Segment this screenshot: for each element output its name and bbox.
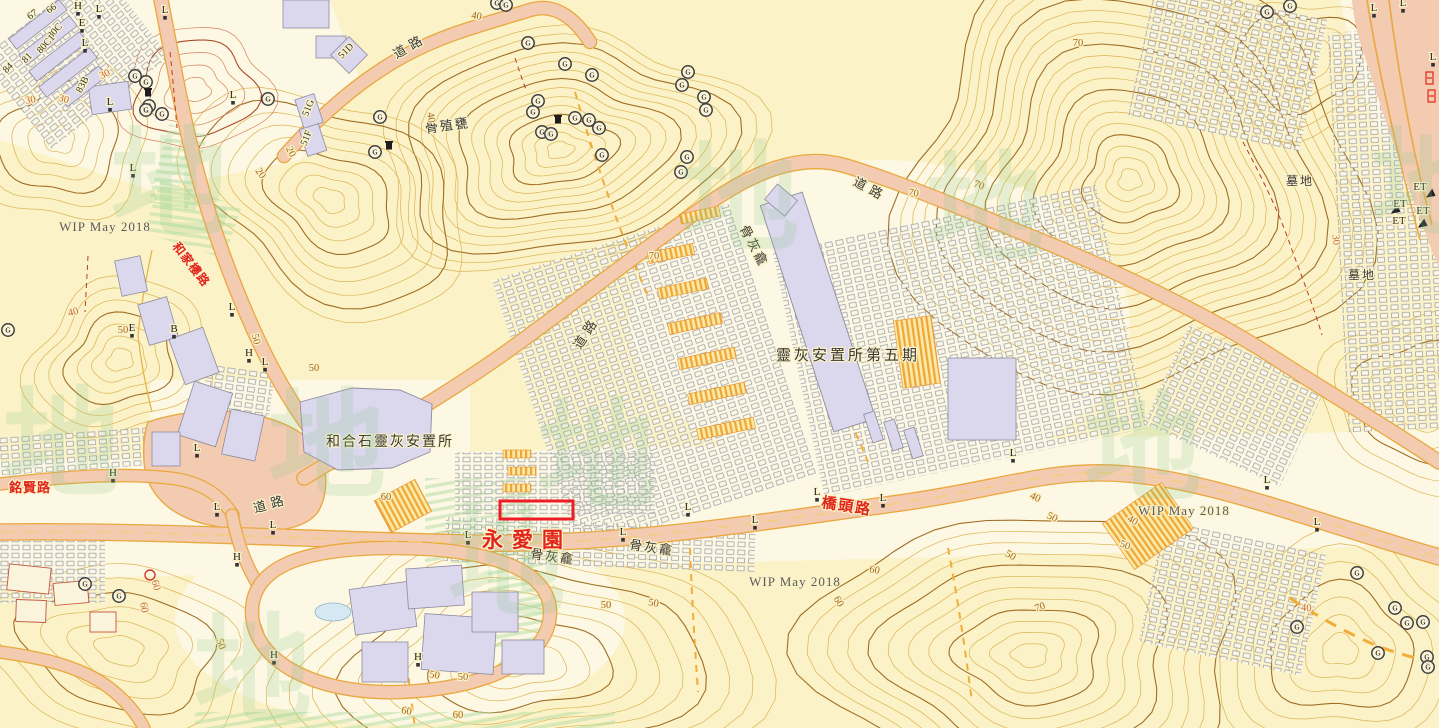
wip-label: WIP May 2018 xyxy=(749,574,841,589)
place-label: 靈灰安置所第五期 xyxy=(776,346,920,364)
grave-icon-glyph: G xyxy=(1392,605,1398,613)
utility-marker-dot xyxy=(263,368,267,372)
utility-marker-dot xyxy=(163,16,167,20)
contour-elevation-label: 60 xyxy=(868,564,880,577)
slope-hatch xyxy=(503,450,531,458)
utility-marker-dot xyxy=(215,513,219,517)
grave-icon-glyph: G xyxy=(530,109,536,117)
grave-icon-glyph: G xyxy=(1294,624,1300,632)
grave-icon: G xyxy=(593,122,605,134)
building-outlined xyxy=(7,564,51,594)
utility-marker-dot xyxy=(76,12,80,16)
grave-icon: G xyxy=(569,112,581,124)
grave-icon: G xyxy=(1417,616,1429,628)
grave-icon-glyph: G xyxy=(1375,650,1381,658)
topographic-map: GGGGGGGGGGGGGGGGGGGGGGGGGGGGGGGGGGGGGGGG… xyxy=(0,0,1439,728)
grave-icon: G xyxy=(113,590,125,602)
grave-icon-glyph: G xyxy=(548,131,554,139)
grave-icon-glyph: G xyxy=(535,98,541,106)
grave-icon-glyph: G xyxy=(377,114,383,122)
building xyxy=(362,642,408,682)
building xyxy=(283,0,329,28)
grave-icon: G xyxy=(676,79,688,91)
grave-icon-glyph: G xyxy=(599,152,605,160)
utility-marker-dot xyxy=(130,334,134,338)
grave-icon: G xyxy=(1351,567,1363,579)
grave-icon: G xyxy=(596,149,608,161)
grave-icon: G xyxy=(522,37,534,49)
grave-icon: G xyxy=(262,93,274,105)
grave-icon: G xyxy=(1422,661,1434,673)
utility-marker-dot xyxy=(230,313,234,317)
building-outlined xyxy=(16,599,47,622)
grave-icon: G xyxy=(500,0,512,11)
grave-icon: G xyxy=(1261,6,1273,18)
watermark-glyph: 地 xyxy=(1371,120,1439,251)
utility-marker-dot xyxy=(247,359,251,363)
building xyxy=(948,358,1016,440)
utility-marker-letter: H xyxy=(414,651,422,663)
watermark-glyph: 地 xyxy=(194,607,312,728)
grave-icon-glyph: G xyxy=(503,2,509,10)
utility-marker-letter: L xyxy=(229,301,236,313)
grave-icon: G xyxy=(527,106,539,118)
grave-icon-glyph: G xyxy=(562,61,568,69)
place-label: 墓地 xyxy=(1348,268,1376,282)
utility-marker-dot xyxy=(753,526,757,530)
utility-marker-letter: H xyxy=(74,0,82,12)
grave-icon-glyph: G xyxy=(1354,570,1360,578)
grave-icon: G xyxy=(2,324,14,336)
bin-lid xyxy=(385,141,393,143)
utility-marker-letter: H xyxy=(245,347,253,359)
utility-marker-dot xyxy=(80,29,84,33)
grave-icon-glyph: G xyxy=(685,69,691,77)
pond xyxy=(315,603,351,621)
utility-marker-dot xyxy=(1265,486,1269,490)
grave-icon-glyph: G xyxy=(525,40,531,48)
highlight-label-wing-oi-garden: 永愛園 xyxy=(481,528,572,552)
grave-icon: G xyxy=(156,108,168,120)
utility-marker-dot xyxy=(83,49,87,53)
utility-marker-letter: H xyxy=(233,551,241,563)
utility-marker-letter: L xyxy=(262,356,269,368)
contour-elevation-label: 50 xyxy=(458,672,469,683)
bin-icon xyxy=(554,115,562,124)
contour-elevation-label: 60 xyxy=(137,601,150,613)
watermark-glyph: 地 xyxy=(1084,385,1202,516)
bin-lid xyxy=(554,115,562,117)
utility-marker-letter: L xyxy=(620,526,627,538)
contour-elevation-label: 50 xyxy=(428,669,440,682)
watermark-glyph: 地 xyxy=(681,135,799,266)
grave-icon: G xyxy=(700,104,712,116)
bin-icon xyxy=(144,88,152,97)
grave-icon-glyph: G xyxy=(701,94,707,102)
utility-marker-letter: L xyxy=(96,3,103,15)
contour-elevation-label: 70 xyxy=(1073,38,1084,49)
utility-marker-dot xyxy=(97,15,101,19)
contour-elevation-label: 50 xyxy=(309,363,320,374)
utility-marker-letter: L xyxy=(880,492,887,504)
utility-marker-letter: L xyxy=(752,514,759,526)
grave-icon-glyph: G xyxy=(703,107,709,115)
grave-icon: G xyxy=(586,69,598,81)
grave-icon-glyph: G xyxy=(159,111,165,119)
grave-icon-glyph: G xyxy=(679,82,685,90)
grave-icon: G xyxy=(559,58,571,70)
utility-marker-dot xyxy=(271,531,275,535)
contour-elevation-label: 50 xyxy=(601,600,612,611)
contour-elevation-label: 40 xyxy=(1301,603,1312,615)
grave-icon: G xyxy=(79,578,91,590)
building xyxy=(502,640,544,674)
bin-lid xyxy=(144,88,152,90)
grave-icon: G xyxy=(374,111,386,123)
watermark-glyph: 地 xyxy=(268,382,386,513)
utility-marker-letter: B xyxy=(170,323,177,335)
utility-marker-letter: L xyxy=(194,442,201,454)
grave-icon: G xyxy=(545,128,557,140)
grave-icon-glyph: G xyxy=(143,107,149,115)
utility-marker-dot xyxy=(172,335,176,339)
grave-icon: G xyxy=(682,66,694,78)
grave-icon-glyph: G xyxy=(132,73,138,81)
grave-icon-glyph: G xyxy=(372,149,378,157)
grave-icon: G xyxy=(698,91,710,103)
utility-marker-dot xyxy=(195,454,199,458)
grave-icon-glyph: G xyxy=(265,96,271,104)
utility-marker-dot xyxy=(815,498,819,502)
grave-icon: G xyxy=(369,146,381,158)
grave-icon: G xyxy=(1284,0,1296,12)
slope-hatch xyxy=(503,484,531,492)
utility-marker-dot xyxy=(235,563,239,567)
bin-body xyxy=(145,90,151,97)
grave-icon-glyph: G xyxy=(143,79,149,87)
utility-marker-letter: L xyxy=(1371,2,1378,14)
watermark-glyph: 地 xyxy=(111,120,229,251)
map-canvas[interactable]: GGGGGGGGGGGGGGGGGGGGGGGGGGGGGGGGGGGGGGGG… xyxy=(0,0,1439,728)
utility-marker-dot xyxy=(1431,63,1435,67)
utility-marker-letter: L xyxy=(1264,474,1271,486)
utility-marker-dot xyxy=(881,504,885,508)
utility-marker-letter: L xyxy=(1400,0,1407,9)
utility-marker-dot xyxy=(1372,14,1376,18)
utility-marker-letter: L xyxy=(1314,516,1321,528)
utility-marker-letter: L xyxy=(82,37,89,49)
grave-icon: G xyxy=(140,104,152,116)
contour-elevation-label: 30 xyxy=(1330,234,1342,245)
utility-marker-letter: L xyxy=(1430,51,1437,63)
grave-icon-glyph: G xyxy=(1287,3,1293,11)
grave-icon-glyph: G xyxy=(589,72,595,80)
place-label: 墓地 xyxy=(1286,174,1314,188)
grave-icon-glyph: G xyxy=(596,125,602,133)
utility-marker-dot xyxy=(1011,459,1015,463)
utility-marker-letter: E xyxy=(79,17,86,29)
contour-elevation-label: 30 xyxy=(24,94,36,107)
bin-body xyxy=(386,143,392,150)
building-outlined xyxy=(90,612,116,632)
grave-icon: G xyxy=(1372,647,1384,659)
utility-marker-letter: L xyxy=(230,89,237,101)
contour-elevation-label: 50 xyxy=(647,597,659,610)
contour-elevation-label: 50 xyxy=(118,325,129,336)
utility-marker-dot xyxy=(1315,528,1319,532)
slope-hatch xyxy=(508,467,536,475)
grave-icon-glyph: G xyxy=(1264,9,1270,17)
building xyxy=(152,432,180,466)
road-name-label-red: 銘賢路 xyxy=(9,480,51,495)
grave-icon-glyph: G xyxy=(1420,619,1426,627)
grave-icon-glyph: G xyxy=(5,327,11,335)
utility-marker-letter: L xyxy=(214,501,221,513)
grave-icon: G xyxy=(1389,602,1401,614)
contour-elevation-label: 40 xyxy=(470,10,482,23)
grave-icon-glyph: G xyxy=(116,593,122,601)
grave-icon: G xyxy=(1401,617,1413,629)
utility-marker-letter: E xyxy=(129,322,136,334)
utility-marker-dot xyxy=(1401,9,1405,13)
utility-marker-letter: L xyxy=(270,519,277,531)
grave-icon-glyph: G xyxy=(1425,664,1431,672)
grave-icon-glyph: G xyxy=(586,117,592,125)
grave-icon: G xyxy=(140,76,152,88)
grave-icon: G xyxy=(1291,621,1303,633)
utility-marker-dot xyxy=(416,663,420,667)
utility-marker-letter: L xyxy=(685,501,692,513)
utility-marker-letter: L xyxy=(1010,447,1017,459)
contour-elevation-label: 40 xyxy=(424,111,437,123)
utility-marker-letter: L xyxy=(107,96,114,108)
grave-icon-glyph: G xyxy=(1404,620,1410,628)
grave-icon-glyph: G xyxy=(82,581,88,589)
bin-icon xyxy=(385,141,393,150)
utility-marker-letter: L xyxy=(814,486,821,498)
utility-marker-dot xyxy=(686,513,690,517)
grave-icon-glyph: G xyxy=(572,115,578,123)
bin-body xyxy=(555,117,561,124)
utility-marker-letter: L xyxy=(162,4,169,16)
utility-marker-dot xyxy=(108,108,112,112)
contour-elevation-label: 60 xyxy=(453,710,464,721)
utility-marker-dot xyxy=(621,538,625,542)
contour-elevation-label: 70 xyxy=(649,251,660,262)
utility-marker-dot xyxy=(231,101,235,105)
contour-elevation-label: 70 xyxy=(907,187,919,200)
watermark-glyph: 地 xyxy=(926,145,1044,276)
contour-elevation-label: 60 xyxy=(400,705,412,718)
